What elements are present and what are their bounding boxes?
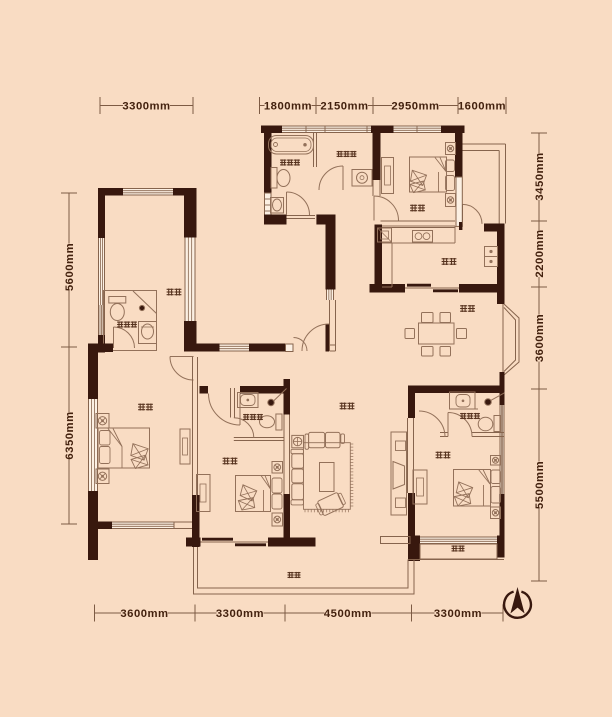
svg-text:5600mm: 5600mm (64, 243, 76, 291)
svg-text:3600mm: 3600mm (534, 314, 546, 362)
svg-text:2150mm: 2150mm (320, 101, 368, 113)
svg-text:2200mm: 2200mm (534, 229, 546, 277)
svg-text:3300mm: 3300mm (216, 608, 264, 620)
svg-text:3600mm: 3600mm (120, 608, 168, 620)
svg-text:2950mm: 2950mm (391, 101, 439, 113)
svg-text:3450mm: 3450mm (534, 152, 546, 200)
svg-text:1600mm: 1600mm (458, 101, 506, 113)
svg-text:6350mm: 6350mm (64, 411, 76, 459)
svg-text:3300mm: 3300mm (434, 608, 482, 620)
svg-text:1800mm: 1800mm (264, 101, 312, 113)
svg-text:3300mm: 3300mm (122, 101, 170, 113)
svg-text:5500mm: 5500mm (534, 461, 546, 509)
svg-text:4500mm: 4500mm (324, 608, 372, 620)
